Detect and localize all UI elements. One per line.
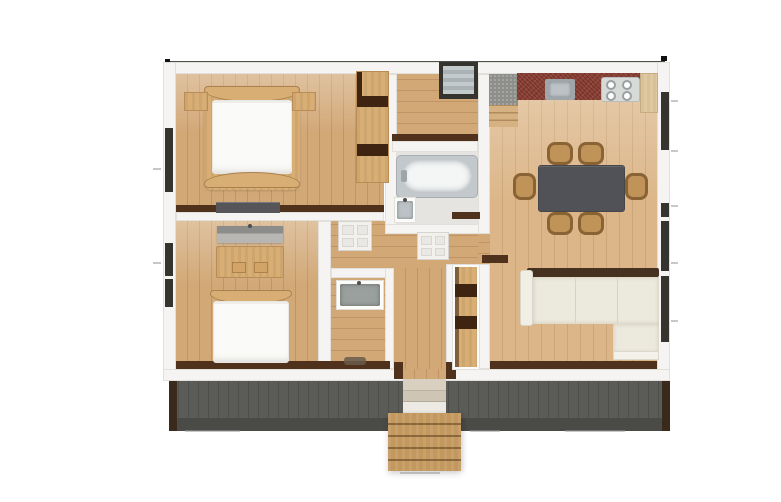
door-panel (357, 225, 369, 235)
utility-wc-north-wall (331, 268, 392, 278)
dimension-tick (565, 430, 625, 432)
dimension-tick (470, 430, 500, 432)
bathroom-sink-faucet-icon (403, 198, 407, 202)
dimension-tick (185, 430, 240, 432)
burner-icon (606, 91, 616, 101)
sofa-armrest-left (520, 270, 533, 326)
window-left-bedroom1-icon (165, 128, 173, 192)
nightstand-right (292, 92, 316, 111)
dimension-tick (671, 320, 678, 322)
dining-chair-e (625, 173, 648, 200)
door-panel (421, 248, 432, 257)
nightstand-left (184, 92, 208, 111)
window-right-living-icon (661, 276, 669, 342)
bed1-mattress (212, 100, 292, 174)
bedroom-divider-wall (176, 212, 384, 221)
door-panel (357, 238, 369, 248)
sofa-seam-1 (575, 278, 576, 323)
sofa-body (533, 277, 659, 324)
exterior-stairs (388, 413, 461, 471)
entry-step-1 (403, 379, 446, 391)
entry-jamb-left (394, 362, 403, 379)
dining-table (539, 166, 624, 211)
baseboard-passage-upper (452, 212, 480, 219)
wall-bedroom2-east (318, 221, 331, 369)
entry-step-3 (403, 402, 446, 413)
dimension-tick (400, 472, 440, 474)
dining-chair-s1 (547, 212, 573, 235)
laundry-sink-basin (340, 284, 380, 306)
dimension-tick (671, 150, 678, 152)
dimension-tick (671, 100, 678, 102)
bathroom-sink-basin (397, 201, 413, 219)
staircase-landing (489, 74, 518, 105)
dimension-tick (153, 262, 161, 264)
wardrobe-shelf-gap-2 (357, 144, 388, 156)
tall-cabinet (640, 73, 658, 113)
sofa-chaise-end (613, 351, 659, 360)
dresser-bedroom1 (216, 202, 280, 213)
window-right-dining-b-icon (661, 221, 669, 271)
door-leaf-a (338, 221, 372, 251)
sofa-chaise (613, 324, 659, 353)
door-panel (342, 238, 354, 248)
deck-post-left (169, 381, 177, 431)
window-right-kitchen-icon (661, 92, 669, 150)
entry-step-2 (403, 391, 446, 402)
bathroom-north-wall (392, 141, 478, 152)
window-right-dining-a-icon (661, 203, 669, 217)
door-panel (435, 248, 446, 257)
desk-bedroom2 (216, 246, 284, 278)
burner-icon (622, 80, 632, 90)
deck-post-right (662, 381, 670, 431)
closet-side-shadow (455, 267, 459, 367)
laundry-faucet-icon (357, 281, 361, 285)
window-bay-glass (443, 66, 474, 94)
dining-chair-w (513, 173, 536, 200)
burner-icon (622, 91, 632, 101)
kitchen-sink-basin (549, 82, 571, 97)
wall-shelf-knob (248, 224, 252, 228)
dining-chair-s2 (578, 212, 604, 235)
sofa-seam-2 (617, 278, 618, 323)
sofa-back-rail (527, 268, 659, 277)
door-panel (435, 236, 446, 245)
door-panel (421, 236, 432, 245)
bathroom-north-baseboard (392, 134, 478, 141)
entry-floor (394, 268, 446, 369)
dimension-marker-top-right (661, 56, 667, 61)
staircase-treads (489, 105, 518, 127)
dimension-tick (671, 205, 678, 207)
dining-chair-n2 (578, 142, 604, 165)
wall-shelf-bedroom2 (217, 226, 283, 243)
baseboard-passage-lower (482, 255, 508, 263)
door-leaf-b (417, 232, 449, 260)
bedroom-divider-baseboard (176, 205, 384, 212)
dimension-tick (671, 262, 678, 264)
wardrobe-side-shadow (357, 72, 362, 96)
window-left-bedroom2b-icon (165, 279, 173, 307)
door-panel (342, 225, 354, 235)
desk-drawer-left (232, 262, 246, 273)
bed2-mattress (213, 301, 289, 363)
exterior-wall-left (163, 62, 176, 381)
utility-wc-east-wall (385, 268, 394, 369)
dimension-tick (153, 168, 161, 170)
bathtub-faucet-icon (401, 170, 407, 182)
floor-plan-scene (0, 0, 781, 502)
dining-chair-n1 (547, 142, 573, 165)
burner-icon (606, 80, 616, 90)
bathtub (402, 160, 472, 192)
floor-mat (344, 357, 366, 365)
window-left-bedroom2a-icon (165, 243, 173, 276)
wardrobe-shelf-gap-1 (357, 96, 388, 107)
desk-drawer-right (254, 262, 268, 273)
baseboard-bottom-right (490, 361, 657, 369)
